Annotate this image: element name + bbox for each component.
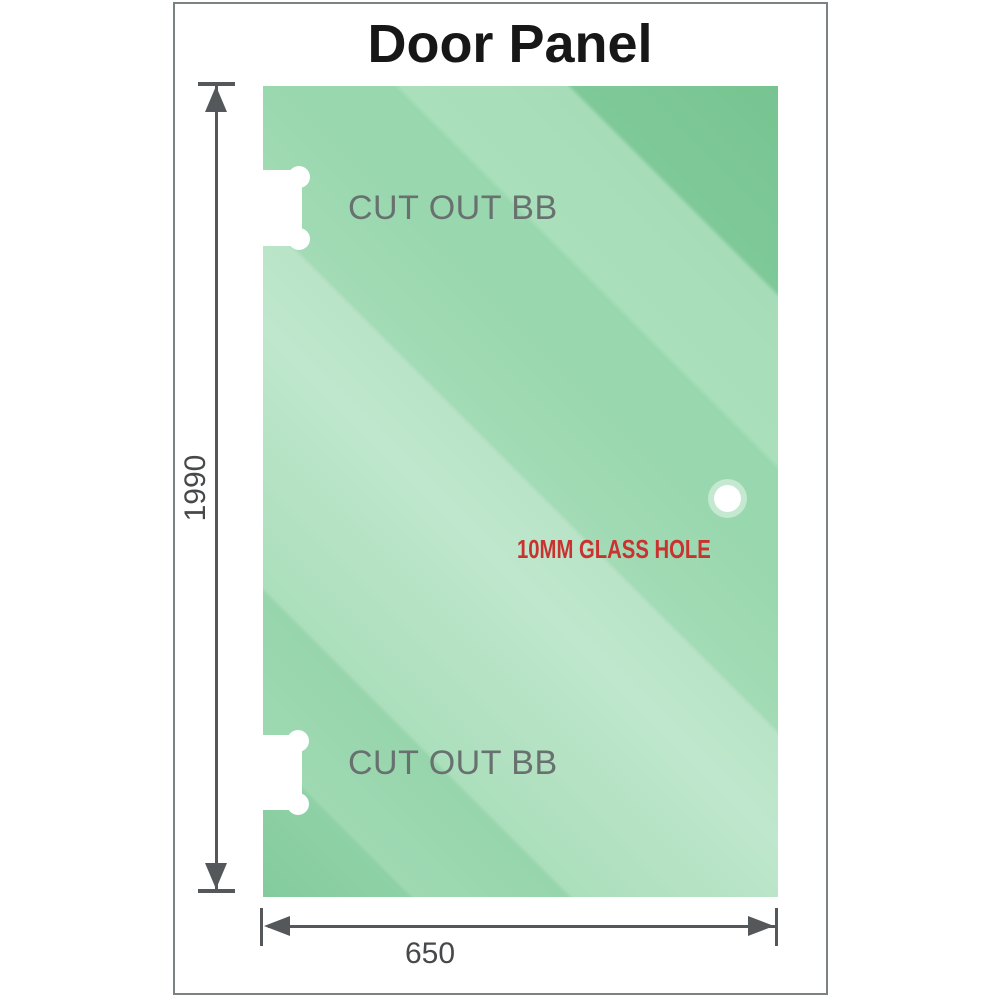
- cutout-top-label: CUT OUT BB: [348, 189, 558, 227]
- width-dim-left-tick: [260, 908, 263, 946]
- cutout-bottom-lower-lobe: [287, 793, 309, 815]
- cutout-bottom-label: CUT OUT BB: [348, 744, 558, 782]
- height-dim-bottom-cap: [198, 889, 235, 893]
- glass-hole-icon: [714, 485, 741, 512]
- cutout-bottom-upper-lobe: [287, 730, 309, 752]
- arrow-right-icon: [748, 916, 774, 936]
- height-dim-label: 1990: [176, 418, 216, 558]
- diagram-canvas: Door Panel CUT OUT BB CUT OUT BB 10MM GL…: [0, 0, 1000, 1000]
- page-title: Door Panel: [200, 16, 820, 72]
- arrow-down-icon: [205, 863, 227, 889]
- width-dim-right-tick: [775, 908, 778, 946]
- glass-hole-label: 10MM GLASS HOLE: [517, 535, 711, 563]
- arrow-left-icon: [264, 916, 290, 936]
- cutout-top-upper-lobe: [288, 166, 310, 188]
- width-dim-label: 650: [370, 934, 490, 974]
- arrow-up-icon: [205, 86, 227, 112]
- cutout-top-lower-lobe: [288, 228, 310, 250]
- width-dim-line: [268, 925, 776, 928]
